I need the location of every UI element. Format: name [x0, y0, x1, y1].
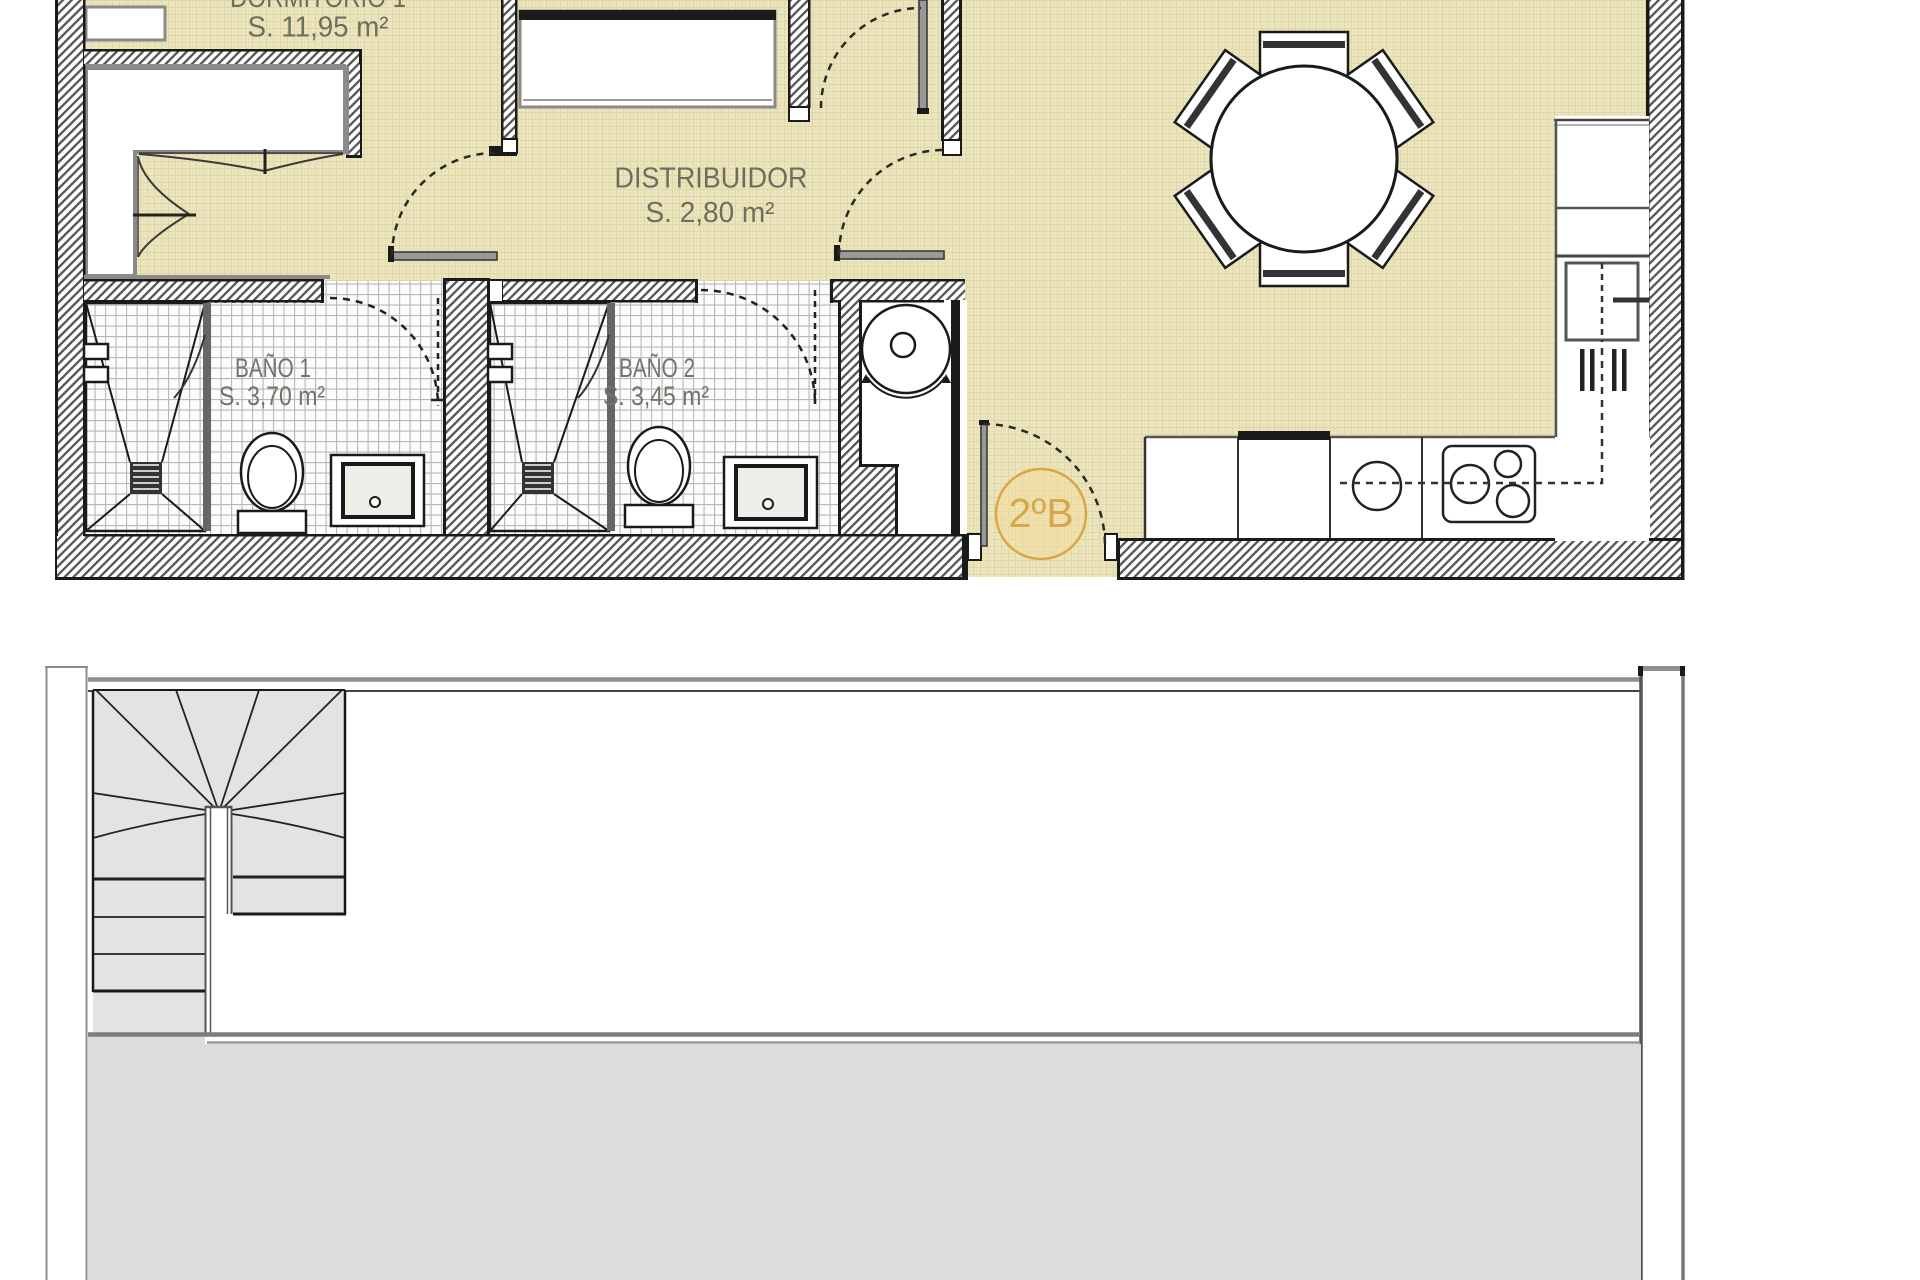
- svg-text:BAÑO 2: BAÑO 2: [619, 352, 695, 383]
- svg-text:S. 11,95 m²: S. 11,95 m²: [248, 12, 389, 44]
- svg-text:BAÑO 1: BAÑO 1: [235, 352, 311, 383]
- svg-text:S. 3,70 m²: S. 3,70 m²: [219, 381, 325, 411]
- svg-text:2ºB: 2ºB: [1008, 490, 1073, 536]
- svg-text:S. 3,45 m²: S. 3,45 m²: [603, 381, 709, 411]
- svg-text:S. 2,80 m²: S. 2,80 m²: [646, 197, 775, 229]
- svg-text:DISTRIBUIDOR: DISTRIBUIDOR: [615, 163, 808, 195]
